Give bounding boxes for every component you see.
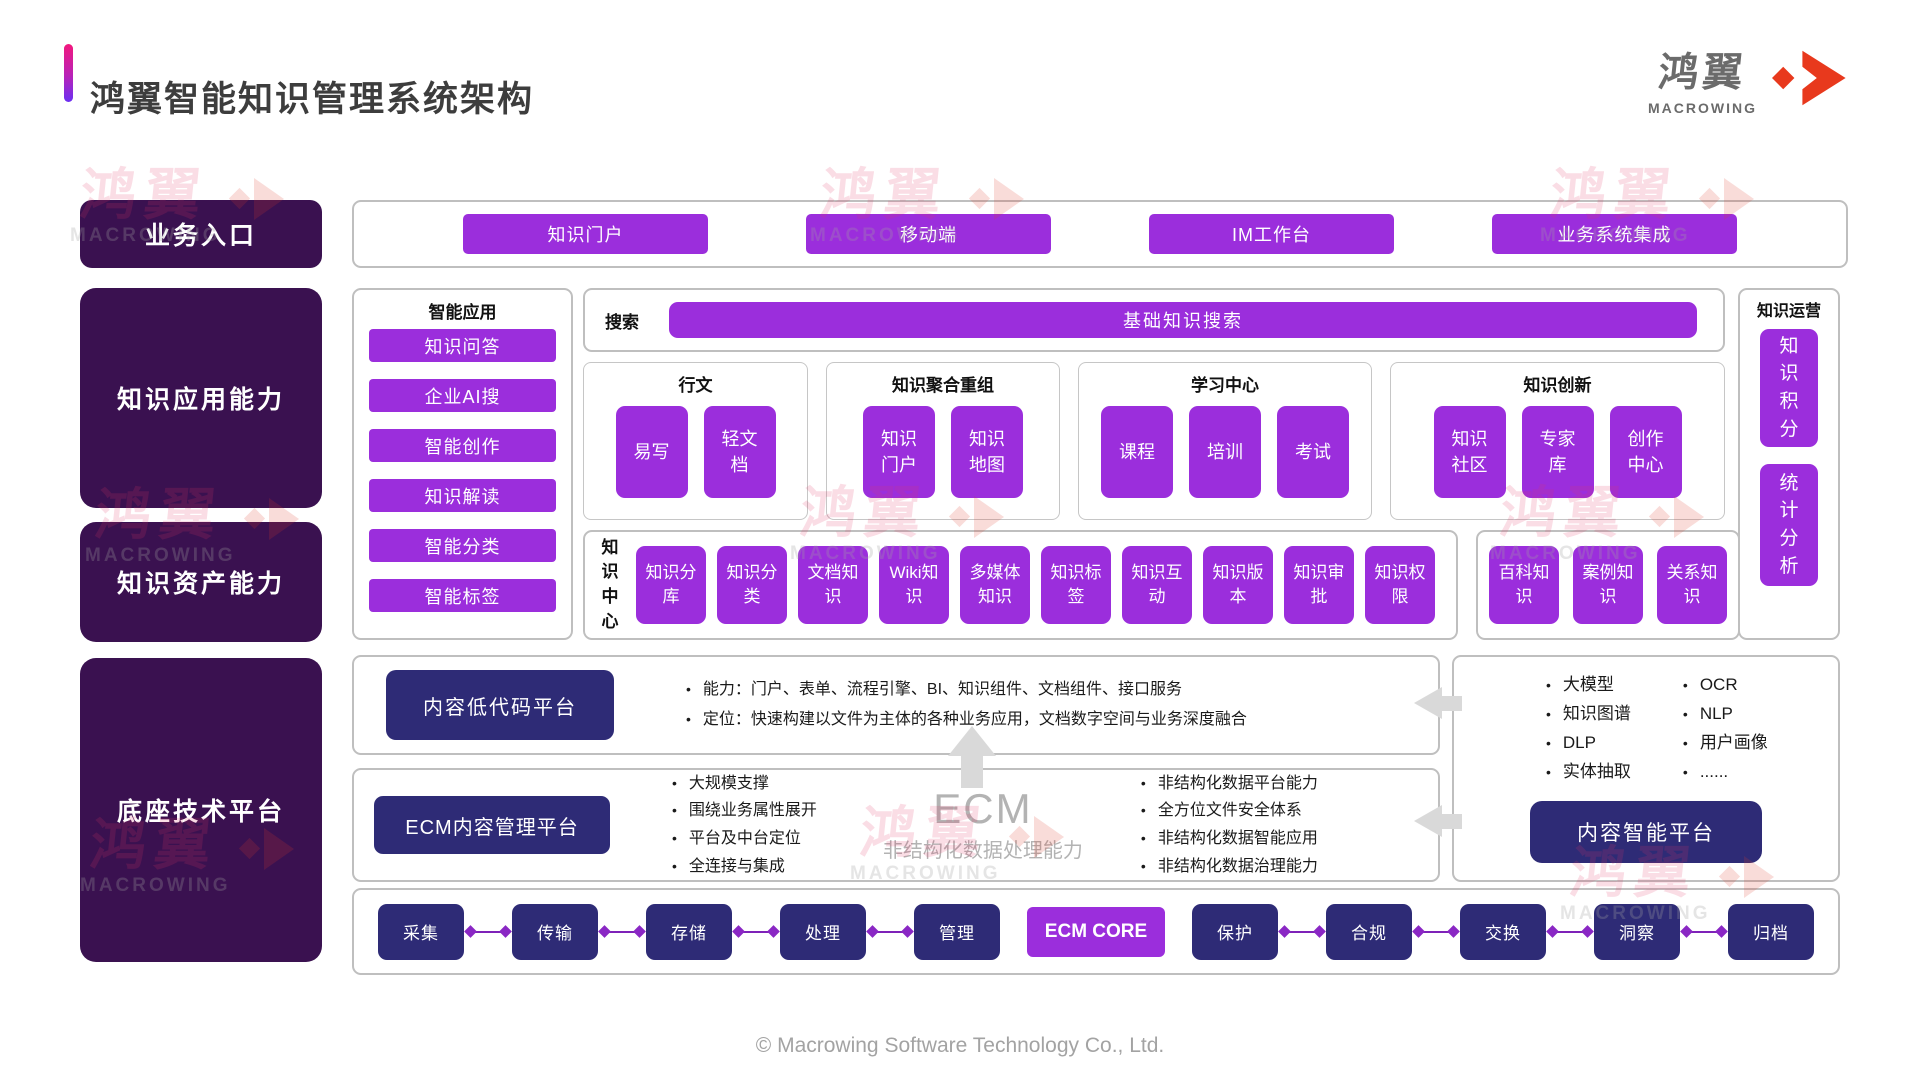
- pipeline-box: 保护: [1192, 904, 1278, 960]
- knowledge-ops-title: 知识运营: [1757, 297, 1821, 321]
- knowledge-extra-button: 百科知识: [1489, 546, 1559, 624]
- bullet-item: 非结构化数据平台能力: [1141, 770, 1318, 798]
- diamond-connector: [471, 931, 505, 933]
- diamond-connector: [1687, 931, 1721, 933]
- knowledge-center-label: 知识中心: [597, 536, 623, 635]
- ecm-right-bullets: 非结构化数据平台能力全方位文件安全体系非结构化数据智能应用非结构化数据治理能力: [1141, 770, 1318, 880]
- bullet-item: 平台及中台定位: [672, 825, 817, 853]
- knowledge-center-list: 知识分库知识分类文档知识Wiki知识多媒体知识知识标签知识互动知识版本知识审批知…: [636, 546, 1435, 624]
- pipeline-panel: 采集 传输 存储 处理 管理 ECM CORE 保护 合规: [352, 888, 1840, 975]
- knowledge-extra-button: 关系知识: [1657, 546, 1727, 624]
- entry-button: IM工作台: [1149, 214, 1394, 254]
- smart-apps-panel: 智能应用 知识问答企业AI搜智能创作知识解读智能分类智能标签: [352, 288, 573, 640]
- bullet-item: ......: [1683, 758, 1768, 787]
- pipeline-cell: 洞察: [1546, 904, 1680, 960]
- slide-canvas: 鸿翼智能知识管理系统架构 鸿翼 MACROWING 业务入口知识应用能力知识资产…: [0, 0, 1920, 1080]
- group-title: 知识创新: [1524, 371, 1592, 396]
- macrowing-logo: 鸿翼 MACROWING: [1648, 40, 1853, 116]
- groups-row: 行文 易写轻文档 知识聚合重组 知识门户知识地图 学习中心 课程培训考试 知识创…: [583, 362, 1725, 520]
- bullet-item: 知识图谱: [1546, 700, 1631, 729]
- pipeline-cell: 管理: [866, 904, 1000, 960]
- intelligence-panel: 大模型知识图谱DLP实体抽取 OCRNLP用户画像...... 内容智能平台: [1452, 655, 1840, 882]
- logo-latin: MACROWING: [1648, 100, 1757, 116]
- bullet-item: 围绕业务属性展开: [672, 797, 817, 825]
- knowledge-center-panel: 知识中心 知识分库知识分类文档知识Wiki知识多媒体知识知识标签知识互动知识版本…: [583, 530, 1458, 640]
- group-title: 行文: [679, 371, 713, 396]
- diamond-connector: [873, 931, 907, 933]
- knowledge-extra-button: 案例知识: [1573, 546, 1643, 624]
- knowledge-center-button: 知识审批: [1284, 546, 1354, 624]
- diamond-connector: [1419, 931, 1453, 933]
- pipeline-cell: 处理: [732, 904, 866, 960]
- smart-apps-title: 智能应用: [429, 298, 497, 323]
- intelligence-col2: OCRNLP用户画像......: [1683, 671, 1768, 787]
- search-label: 搜索: [605, 308, 639, 333]
- ecm-center-title: ECM: [863, 788, 1103, 830]
- knowledge-center-button: 知识权限: [1365, 546, 1435, 624]
- smart-app-button: 智能标签: [369, 579, 556, 612]
- knowledge-ops-list: 知识积分统计分析: [1760, 329, 1818, 586]
- ecm-center-subtitle: 非结构化数据处理能力: [863, 834, 1103, 863]
- pipeline-cell: 传输: [464, 904, 598, 960]
- group-button: 课程: [1101, 406, 1173, 498]
- bullet-item: 非结构化数据智能应用: [1141, 825, 1318, 853]
- pipeline-cell: 归档: [1680, 904, 1814, 960]
- pipeline-box: 采集: [378, 904, 464, 960]
- diamond-connector: [605, 931, 639, 933]
- pipeline-box: 交换: [1460, 904, 1546, 960]
- smart-app-button: 企业AI搜: [369, 379, 556, 412]
- pipeline-box: 归档: [1728, 904, 1814, 960]
- knowledge-ops-button: 知识积分: [1760, 329, 1818, 447]
- smart-app-button: 智能分类: [369, 529, 556, 562]
- knowledge-center-button: 知识版本: [1203, 546, 1273, 624]
- group-button: 创作中心: [1610, 406, 1682, 498]
- bullet-item: 能力：门户、表单、流程引擎、BI、知识组件、文档组件、接口服务: [686, 675, 1247, 705]
- ecm-platform-button: ECM内容管理平台: [374, 796, 610, 854]
- pipeline-box: 处理: [780, 904, 866, 960]
- bullet-item: 用户画像: [1683, 729, 1768, 758]
- knowledge-center-button: 多媒体知识: [960, 546, 1030, 624]
- pipeline-box: 传输: [512, 904, 598, 960]
- pipeline-box: 管理: [914, 904, 1000, 960]
- smart-apps-list: 知识问答企业AI搜智能创作知识解读智能分类智能标签: [354, 329, 571, 612]
- rail-item: 底座技术平台: [80, 658, 322, 962]
- up-arrow-icon: [948, 726, 996, 788]
- group-title: 知识聚合重组: [892, 371, 994, 396]
- left-arrow-icon: [1414, 687, 1462, 719]
- ecm-center: ECM 非结构化数据处理能力: [863, 788, 1103, 863]
- group-button: 培训: [1189, 406, 1261, 498]
- title-accent-bar: [64, 44, 73, 102]
- bullet-item: 大规模支撑: [672, 770, 817, 798]
- group-button: 知识地图: [951, 406, 1023, 498]
- knowledge-center-button: 文档知识: [798, 546, 868, 624]
- knowledge-center-button: 知识分库: [636, 546, 706, 624]
- knowledge-ops-panel: 知识运营 知识积分统计分析: [1738, 288, 1840, 640]
- smart-app-button: 知识问答: [369, 329, 556, 362]
- ecm-core-button: ECM CORE: [1027, 907, 1165, 957]
- group-box-writing: 行文 易写轻文档: [583, 362, 808, 520]
- logo-cjk: 鸿翼: [1655, 40, 1749, 98]
- pipeline-cell: 采集: [378, 904, 464, 960]
- pipeline-right-group: 保护 合规 交换 洞察 归档: [1192, 904, 1814, 960]
- group-box-aggregation: 知识聚合重组 知识门户知识地图: [826, 362, 1060, 520]
- pipeline-cell: 保护: [1192, 904, 1278, 960]
- group-box-learning: 学习中心 课程培训考试: [1078, 362, 1372, 520]
- pipeline-cell: 合规: [1278, 904, 1412, 960]
- group-box-innovation: 知识创新 知识社区专家库创作中心: [1390, 362, 1725, 520]
- lowcode-platform-button: 内容低代码平台: [386, 670, 614, 740]
- group-button: 易写: [616, 406, 688, 498]
- bullet-item: 实体抽取: [1546, 758, 1631, 787]
- intelligence-bullet-columns: 大模型知识图谱DLP实体抽取 OCRNLP用户画像......: [1546, 671, 1768, 787]
- diamond-connector: [1285, 931, 1319, 933]
- ecm-panel: ECM内容管理平台 大规模支撑围绕业务属性展开平台及中台定位全连接与集成 ECM…: [352, 768, 1440, 882]
- basic-knowledge-search-button: 基础知识搜索: [669, 302, 1697, 338]
- left-arrow-icon: [1414, 805, 1462, 837]
- intelligence-col1: 大模型知识图谱DLP实体抽取: [1546, 671, 1631, 787]
- logo-text: 鸿翼 MACROWING: [1648, 40, 1757, 116]
- pipeline-left-group: 采集 传输 存储 处理 管理: [378, 904, 1000, 960]
- entry-button: 知识门户: [463, 214, 708, 254]
- bullet-item: DLP: [1546, 729, 1631, 758]
- page-title: 鸿翼智能知识管理系统架构: [90, 71, 534, 122]
- bullet-item: 大模型: [1546, 671, 1631, 700]
- rail-item: 业务入口: [80, 200, 322, 268]
- knowledge-center-button: Wiki知识: [879, 546, 949, 624]
- diamond-arrow-icon: [1771, 46, 1853, 110]
- pipeline-box: 洞察: [1594, 904, 1680, 960]
- pipeline-box: 存储: [646, 904, 732, 960]
- content-intelligence-button: 内容智能平台: [1530, 801, 1762, 863]
- group-button: 考试: [1277, 406, 1349, 498]
- bullet-item: 全方位文件安全体系: [1141, 797, 1318, 825]
- group-title: 学习中心: [1191, 371, 1259, 396]
- search-panel: 搜索 基础知识搜索: [583, 288, 1725, 352]
- bullet-item: 非结构化数据治理能力: [1141, 853, 1318, 881]
- entry-panel: 知识门户移动端IM工作台业务系统集成: [352, 200, 1848, 268]
- knowledge-extra-panel: 百科知识案例知识关系知识: [1476, 530, 1740, 640]
- bullet-item: NLP: [1683, 700, 1768, 729]
- footer-text: © Macrowing Software Technology Co., Ltd…: [0, 1034, 1920, 1058]
- knowledge-ops-button: 统计分析: [1760, 464, 1818, 586]
- pipeline-box: 合规: [1326, 904, 1412, 960]
- ecm-left-bullets: 大规模支撑围绕业务属性展开平台及中台定位全连接与集成: [672, 770, 817, 880]
- rail-item: 知识资产能力: [80, 522, 322, 642]
- knowledge-center-button: 知识分类: [717, 546, 787, 624]
- group-button: 知识社区: [1434, 406, 1506, 498]
- pipeline-cell: 存储: [598, 904, 732, 960]
- entry-button: 业务系统集成: [1492, 214, 1737, 254]
- group-button: 轻文档: [704, 406, 776, 498]
- group-button: 知识门户: [863, 406, 935, 498]
- entry-button: 移动端: [806, 214, 1051, 254]
- pipeline-cell: 交换: [1412, 904, 1546, 960]
- bullet-item: 全连接与集成: [672, 853, 817, 881]
- diamond-connector: [739, 931, 773, 933]
- knowledge-center-button: 知识互动: [1122, 546, 1192, 624]
- smart-app-button: 智能创作: [369, 429, 556, 462]
- group-button: 专家库: [1522, 406, 1594, 498]
- knowledge-center-button: 知识标签: [1041, 546, 1111, 624]
- bullet-item: OCR: [1683, 671, 1768, 700]
- lowcode-panel: 内容低代码平台 能力：门户、表单、流程引擎、BI、知识组件、文档组件、接口服务定…: [352, 655, 1440, 755]
- diamond-connector: [1553, 931, 1587, 933]
- rail-item: 知识应用能力: [80, 288, 322, 508]
- smart-app-button: 知识解读: [369, 479, 556, 512]
